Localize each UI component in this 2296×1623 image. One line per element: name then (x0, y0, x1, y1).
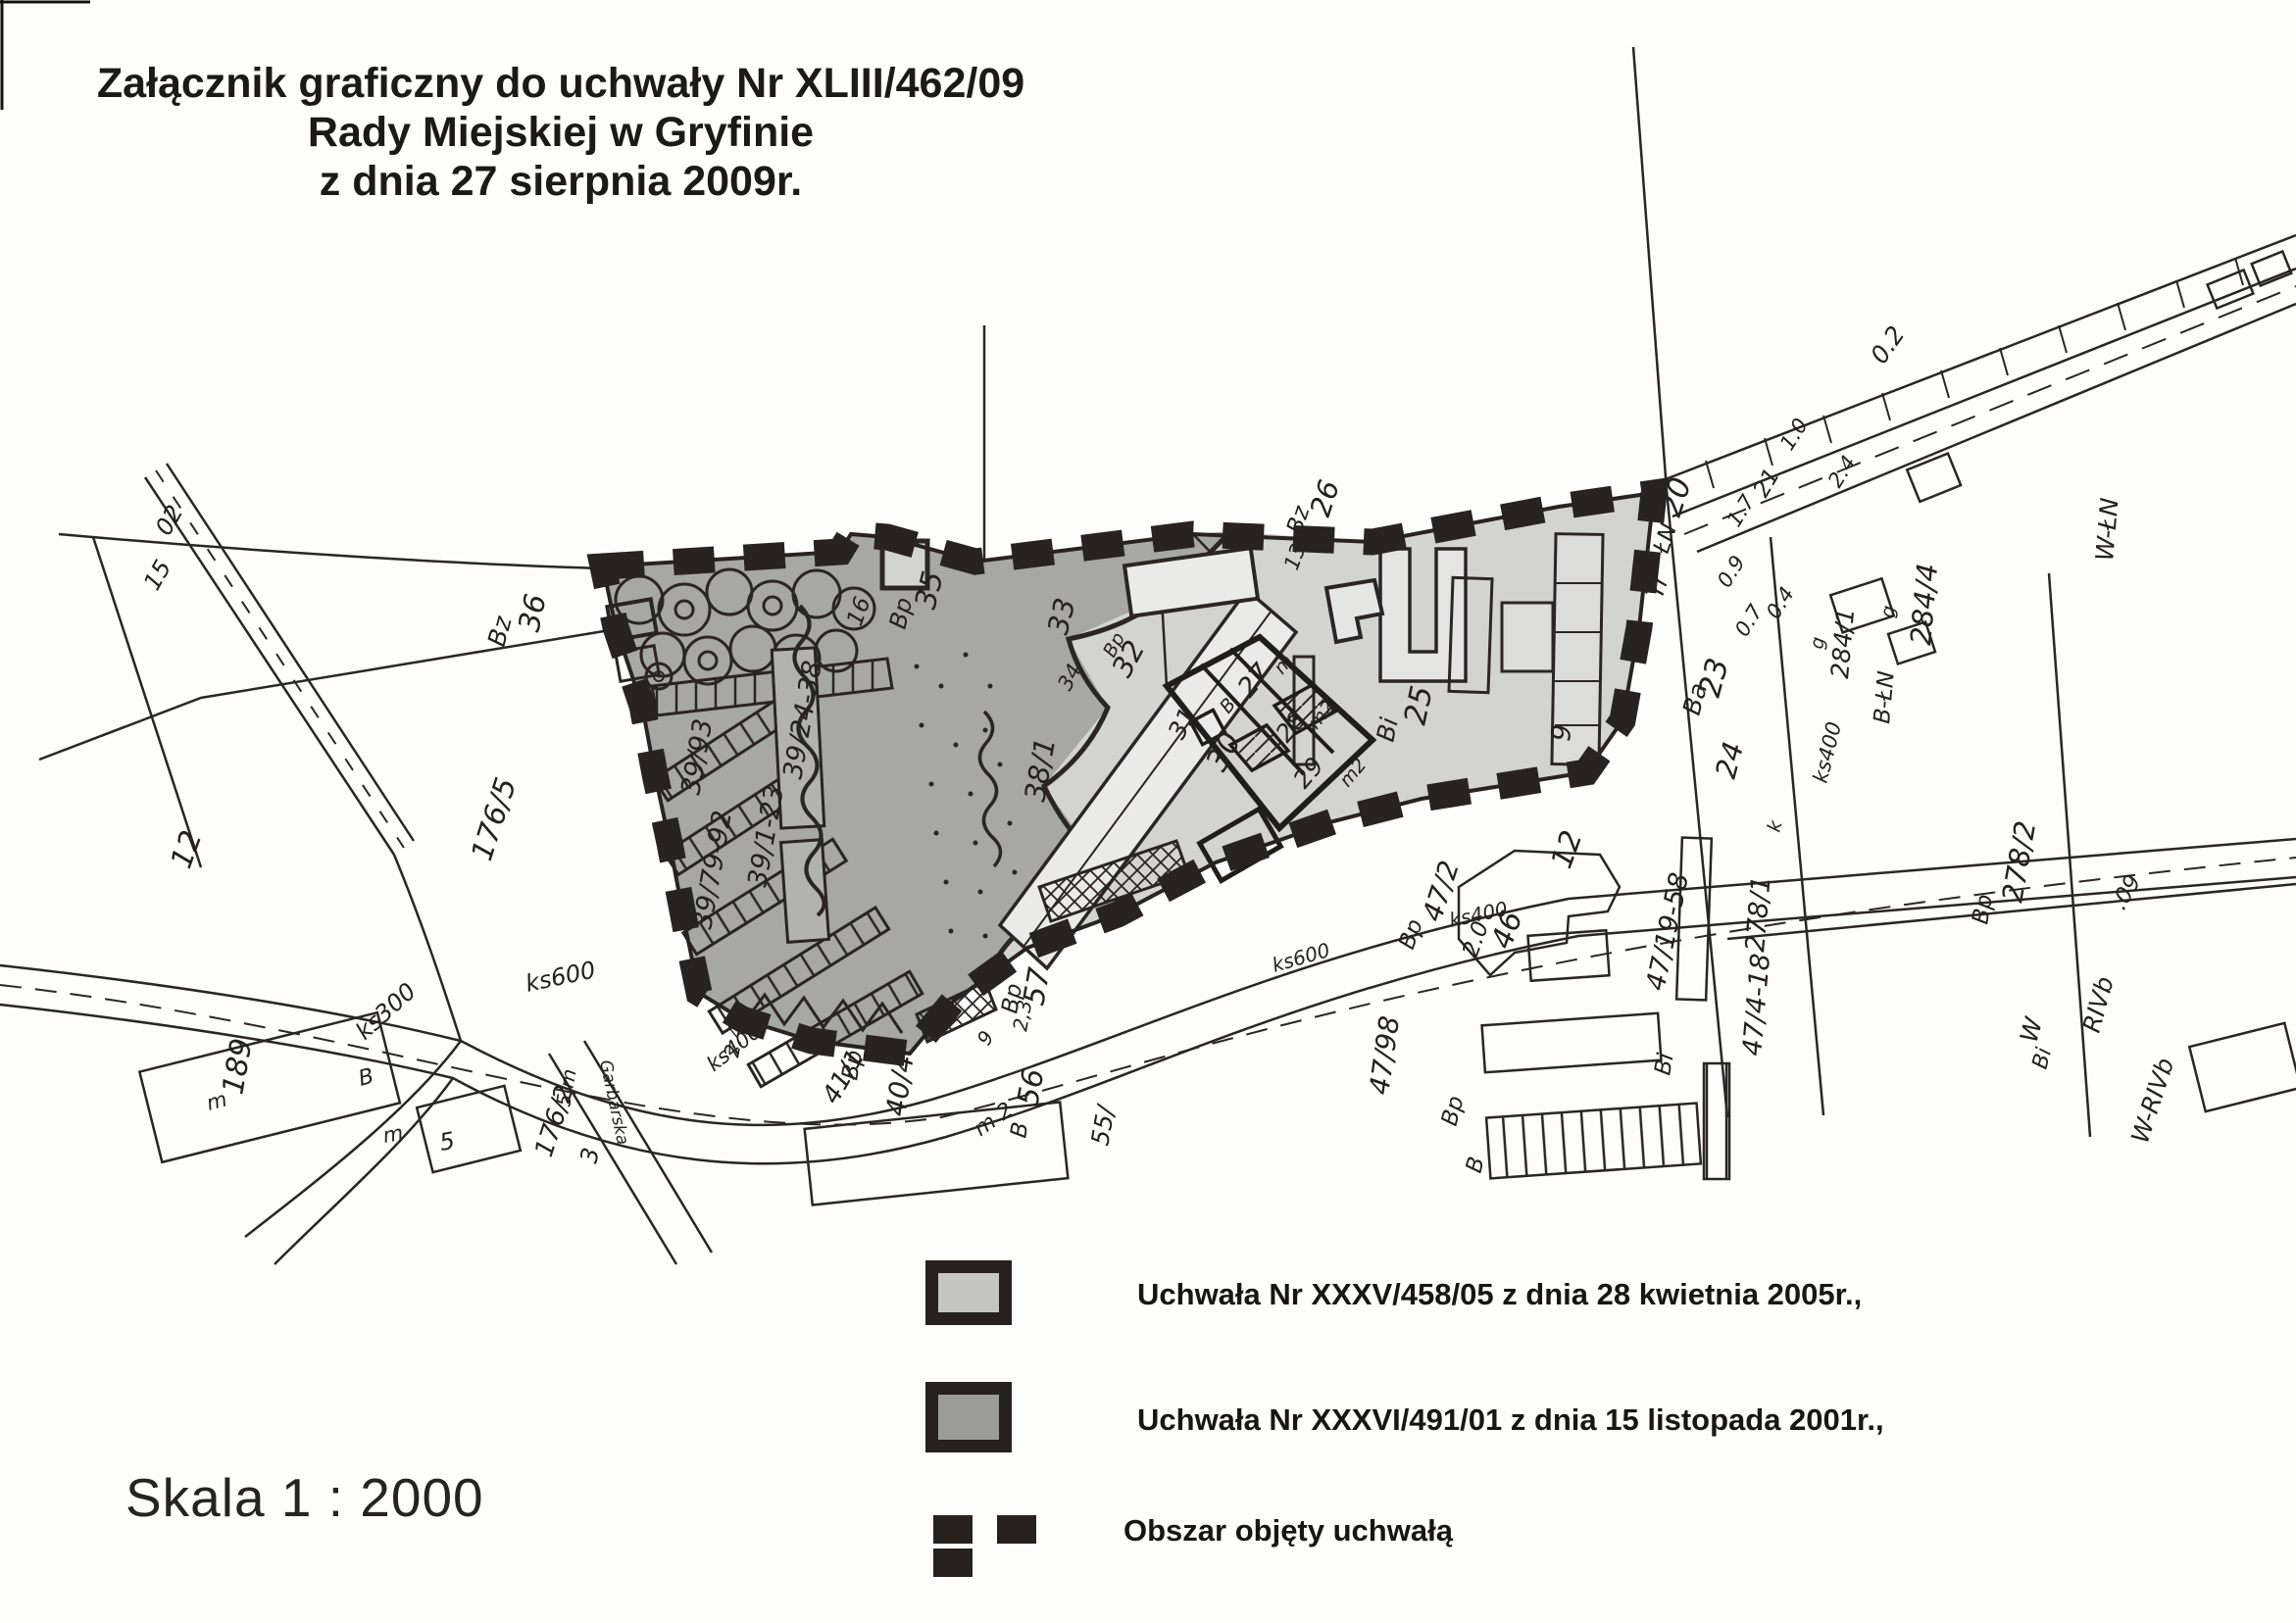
map-label: ks600 (1270, 938, 1332, 977)
map-label: ks400 (1809, 719, 1847, 785)
map-label: 24 (1709, 738, 1750, 781)
map-label: Bi (1650, 1051, 1679, 1077)
map-label: 9 (1546, 723, 1577, 743)
map-label: 36 (513, 591, 554, 635)
map-label: B (1462, 1155, 1490, 1176)
map-label: 12 (1545, 826, 1590, 873)
title-line-2: Rady Miejskiej w Gryfinie (51, 108, 1071, 157)
map-label: 0.4 (1762, 583, 1799, 623)
map-label: 176/5 (465, 773, 524, 864)
legend-swatch-resolution-2005 (925, 1260, 1012, 1325)
map-label: Bp (1394, 916, 1428, 953)
map-label: W (2015, 1013, 2049, 1046)
dash-segment (933, 1549, 973, 1577)
dash-segment (933, 1515, 973, 1544)
map-label: 1.0 (1775, 415, 1813, 455)
map-label: 47/19-58 (1641, 870, 1696, 994)
map-label: 0.7 (1730, 600, 1768, 641)
map-label: 15 (138, 556, 177, 595)
map-label: 3 (574, 1145, 605, 1165)
map-label: 5 (437, 1127, 457, 1156)
map-label: 2,3 (1008, 998, 1036, 1032)
map-label: B (1006, 1120, 1033, 1140)
title-line-1: Załącznik graficzny do uchwały Nr XLIII/… (51, 59, 1071, 108)
map-label: 1.7 (1722, 490, 1760, 531)
map-label: Bi (2028, 1046, 2058, 1072)
map-label: 0.9 (1713, 552, 1750, 592)
map-label: k (1764, 817, 1787, 834)
legend-swatch-dashed-boundary (933, 1515, 1110, 1545)
map-label: .09 (2107, 870, 2147, 914)
map-label: RIVb (2077, 973, 2120, 1035)
map-label: 5 m (551, 1067, 580, 1108)
legend-label-dashed-boundary: Obszar objęty uchwałą (1123, 1513, 1453, 1549)
document-title: Załącznik graficzny do uchwały Nr XLIII/… (51, 59, 1071, 206)
dash-segment (997, 1515, 1036, 1544)
map-label: ks300 (350, 977, 421, 1045)
scanned-plan-document: 021536Bz176/512189mBks600ks300m5176/235 … (0, 0, 2296, 1623)
map-label: W-ŁN (2090, 496, 2124, 562)
map-label: 12 (165, 826, 210, 873)
map-label: 278/1 (1740, 874, 1777, 953)
map-label: 9 (973, 1026, 999, 1049)
legend-swatch-resolution-2001 (925, 1382, 1012, 1452)
map-label: g (1876, 604, 1900, 619)
legend-label-resolution-2005: Uchwała Nr XXXV/458/05 z dnia 28 kwietni… (1137, 1277, 1862, 1312)
cadastral-map: 021536Bz176/512189mBks600ks300m5176/235 … (0, 0, 2296, 1623)
map-label: 0.2 (1865, 320, 1911, 369)
map-scale-label: Skala 1 : 2000 (125, 1466, 484, 1529)
map-label: g (1806, 635, 1829, 651)
map-label: B-ŁN (1870, 670, 1900, 725)
title-line-3: z dnia 27 sierpnia 2009r. (51, 157, 1071, 206)
map-label: 284/4 (1904, 562, 1944, 646)
map-label: ks600 (523, 956, 597, 997)
map-label: B (356, 1064, 376, 1092)
map-label: Bp (1968, 893, 1998, 926)
map-label: W-RIVb (2125, 1055, 2179, 1147)
legend-label-resolution-2001: Uchwała Nr XXXVI/491/01 z dnia 15 listop… (1137, 1402, 1884, 1438)
map-label: 56 (1011, 1066, 1051, 1109)
map-label: Bp (1437, 1093, 1470, 1128)
map-label: 47/4-18 (1737, 953, 1776, 1057)
map-label: Bz (482, 613, 518, 650)
map-label: 55/ (1085, 1102, 1121, 1148)
map-label: m (381, 1121, 405, 1148)
map-label: 47/98 (1363, 1013, 1406, 1097)
map-label: 278/2 (1995, 818, 2042, 905)
map-label: 284/1 (1825, 607, 1860, 679)
